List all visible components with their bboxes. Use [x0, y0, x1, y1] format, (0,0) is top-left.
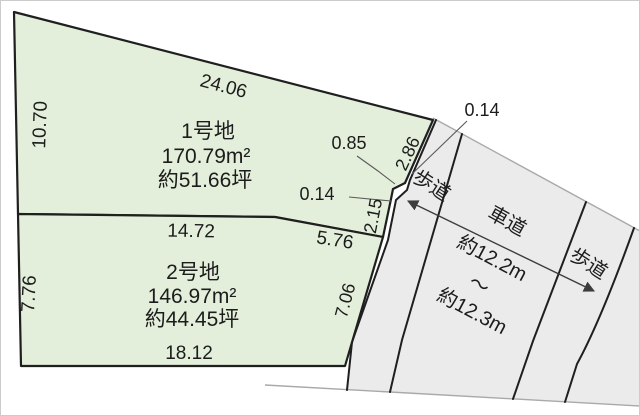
plot2-area-sqm-label: 146.97m²	[148, 285, 237, 308]
dim-label-left-edge-plot1: 10.70	[29, 101, 52, 149]
dim-label-085: 0.85	[331, 133, 366, 153]
dim-label-left-edge-plot2: 7.76	[18, 275, 41, 313]
land-plot-diagram: 24.06 10.70 1号地 170.79m² 約51.66坪 0.85 2.…	[0, 0, 640, 416]
dim-label-bottom-edge: 18.12	[165, 343, 213, 364]
plot2-name-label: 2号地	[166, 261, 220, 284]
plot1-area-tsubo-label: 約51.66坪	[158, 169, 253, 192]
diagram-svg: 24.06 10.70 1号地 170.79m² 約51.66坪 0.85 2.…	[0, 0, 640, 416]
plot2-area-tsubo-label: 約44.45坪	[145, 308, 240, 331]
dim-label-014-top: 0.14	[464, 100, 499, 120]
dim-label-014-left: 0.14	[299, 184, 334, 204]
plot1-area-sqm-label: 170.79m²	[162, 145, 251, 168]
plot1-name-label: 1号地	[181, 120, 235, 143]
dim-label-1472: 14.72	[167, 221, 215, 243]
